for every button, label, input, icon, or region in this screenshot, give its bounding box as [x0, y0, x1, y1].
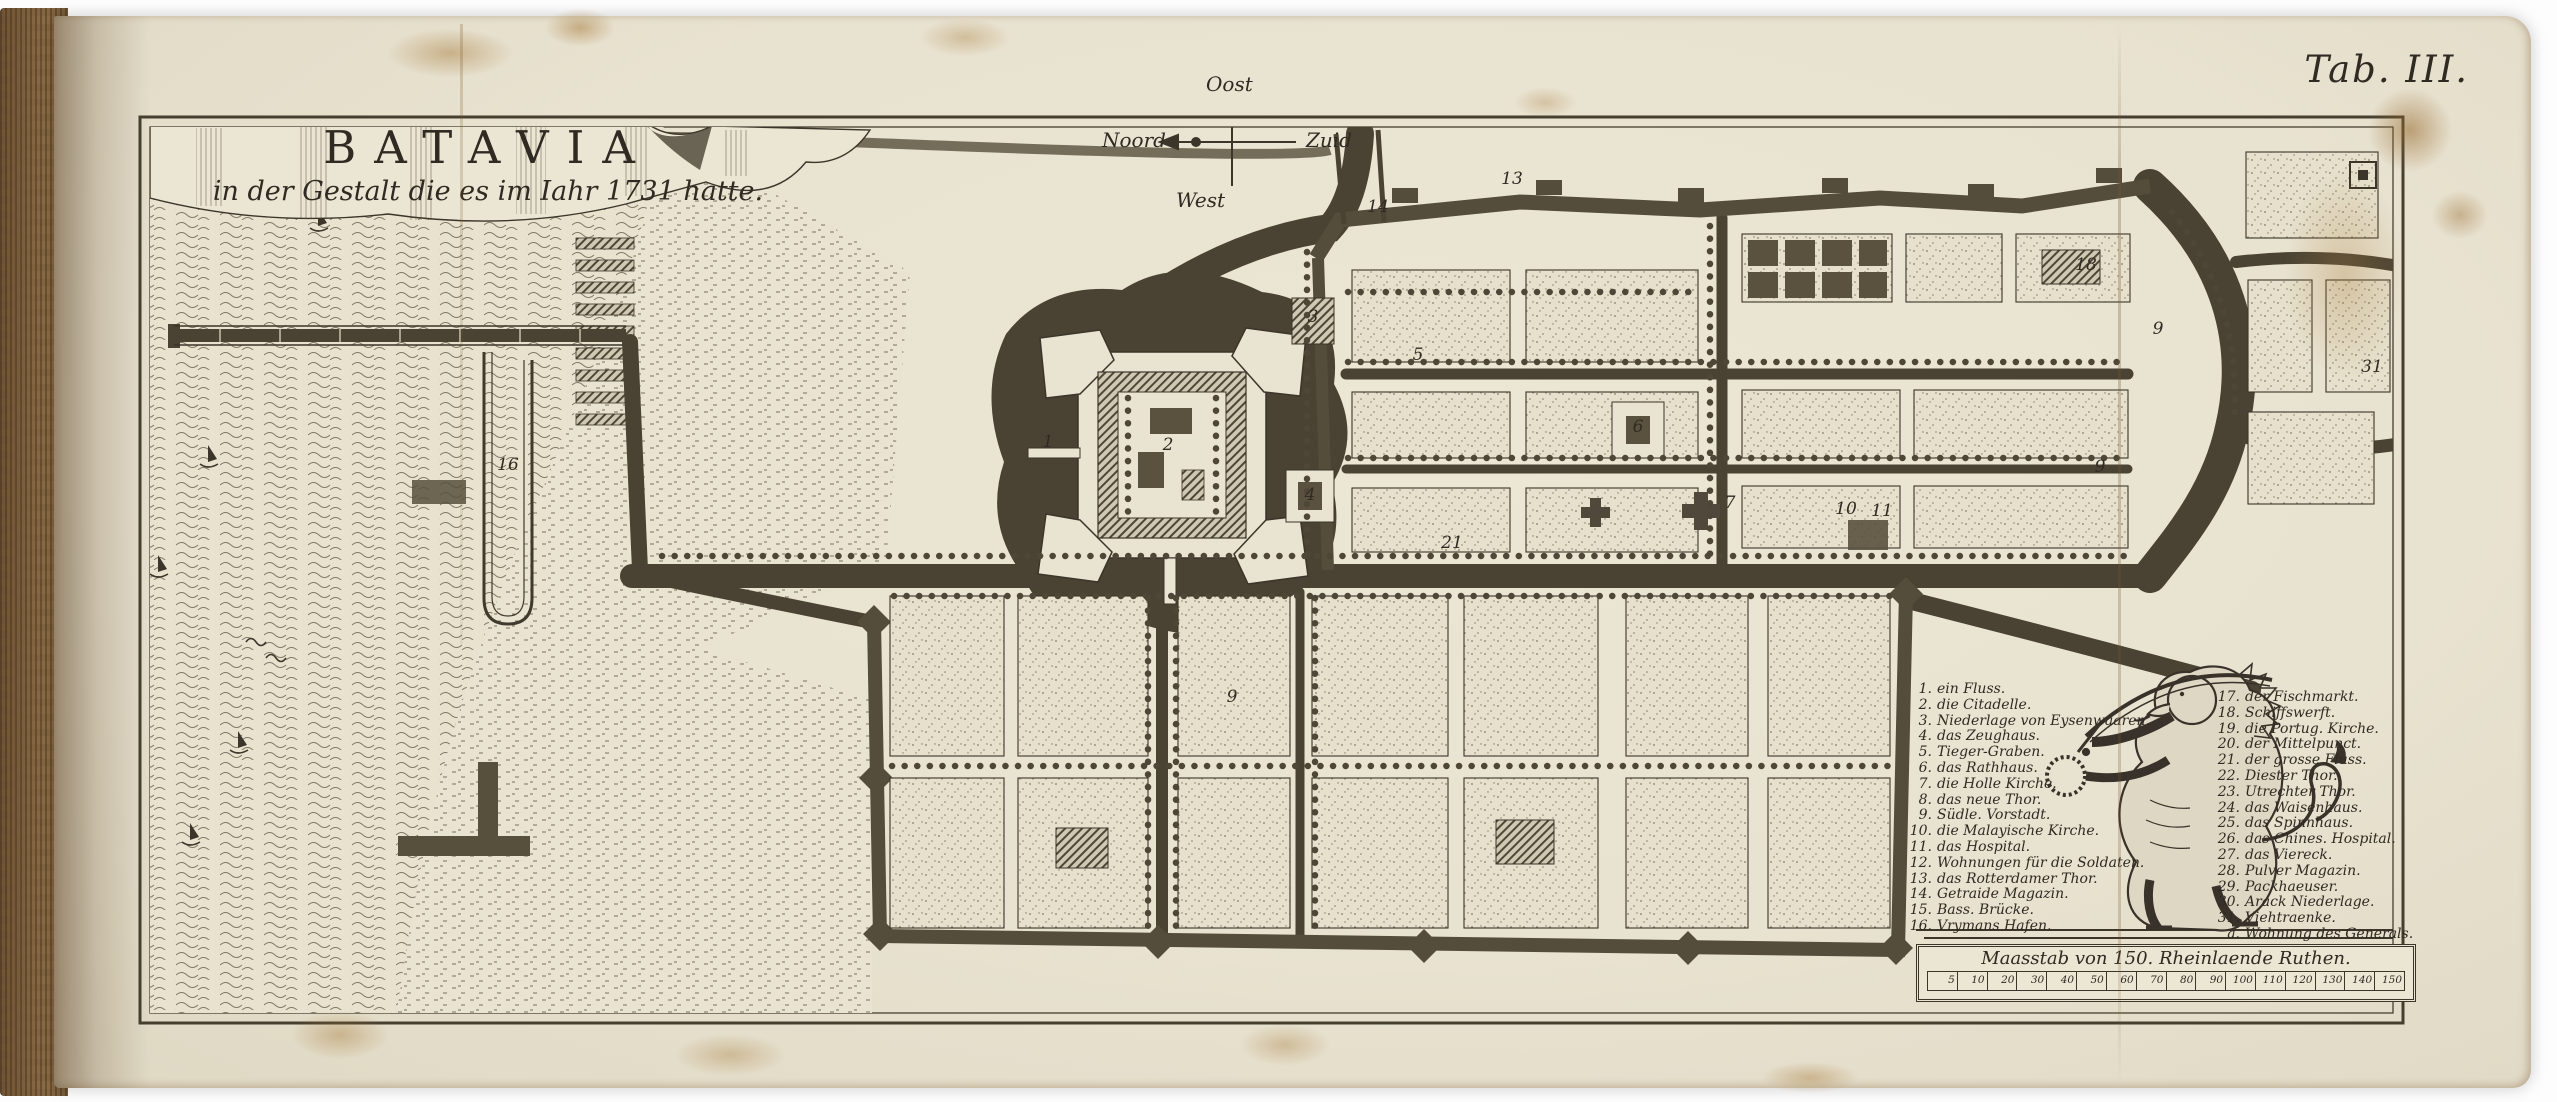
title-subtitle: in der Gestalt die es im Iahr 1731 hatte… — [208, 176, 768, 207]
scale-tick: 90 — [2196, 972, 2226, 990]
scale-tick: 100 — [2226, 972, 2256, 990]
compass-west-label: West — [1176, 188, 1225, 212]
map-marker: 2 — [1162, 435, 1174, 455]
legend-item: 12.Wohnungen für die Soldaten. — [1906, 856, 2141, 872]
map-marker: 18 — [2075, 255, 2097, 275]
legend-item: 15.Bass. Brücke. — [1906, 903, 2141, 919]
legend-item: 8.das neue Thor. — [1906, 793, 2141, 809]
legend-column-left: 1.ein Fluss.2.die Citadelle.3.Niederlage… — [1906, 682, 2141, 935]
legend-column-right: 17.der Fischmarkt.18.Schiffswerft.19.die… — [2214, 690, 2429, 943]
legend-item: 6.das Rathhaus. — [1906, 761, 2141, 777]
legend-item: 24.das Waisenhaus. — [2214, 801, 2429, 817]
map-marker: 6 — [1633, 417, 1644, 437]
legend-item: 23.Utrechter Thor. — [2214, 785, 2429, 801]
legend-item: a.Wohnung des Generals. — [2214, 927, 2429, 943]
compass-east-label: Oost — [1206, 72, 1253, 96]
legend-item: 18.Schiffswerft. — [2214, 706, 2429, 722]
legend-item: 17.der Fischmarkt. — [2214, 690, 2429, 706]
legend-item: 7.die Holle Kirche. — [1906, 777, 2141, 793]
legend-item: 14.Getraide Magazin. — [1906, 887, 2141, 903]
legend-item: 5.Tieger-Graben. — [1906, 745, 2141, 761]
legend-item: 9.Südle. Vorstadt. — [1906, 808, 2141, 824]
scale-tick: 30 — [2017, 972, 2047, 990]
map-marker: 14 — [1367, 197, 1389, 217]
map-marker: 1 — [1043, 432, 1054, 452]
scale-tick: 150 — [2375, 972, 2404, 990]
legend-item: 21.der grosse Fluss. — [2214, 753, 2429, 769]
map-marker: 9 — [2153, 319, 2164, 339]
legend-item: 30.Arack Niederlage. — [2214, 895, 2429, 911]
scale-cartouche: Maasstab von 150. Rheinlaende Ruthen. 51… — [1916, 944, 2416, 1002]
legend-item: 27.das Viereck. — [2214, 848, 2429, 864]
map-marker: 13 — [1501, 169, 1523, 189]
map-marker: 31 — [2361, 357, 2383, 377]
legend-item: 3.Niederlage von Eysenwaaren. — [1906, 714, 2141, 730]
scale-tick: 50 — [2077, 972, 2107, 990]
legend-item: 2.die Citadelle. — [1906, 698, 2141, 714]
scale-tick: 5 — [1928, 972, 1958, 990]
scale-bar: 5102030405060708090100110120130140150 — [1927, 971, 2405, 991]
title-main: BATAVIA — [323, 121, 653, 174]
book-photo: 12345679991011131416182131 Tab. III. BAT… — [0, 0, 2557, 1102]
legend-item: 16.Vrymans Hafen. — [1906, 919, 2141, 935]
map-marker: 4 — [1304, 485, 1316, 505]
scale-tick: 110 — [2256, 972, 2286, 990]
map-marker: 11 — [1871, 501, 1893, 521]
scale-tick: 40 — [2047, 972, 2077, 990]
scale-tick: 20 — [1988, 972, 2018, 990]
legend-item: 11.das Hospital. — [1906, 840, 2141, 856]
legend-item: 26.das Chines. Hospital. — [2214, 832, 2429, 848]
map-marker: 9 — [2095, 457, 2106, 477]
map-marker: 21 — [1440, 533, 1463, 553]
legend-item: 29.Packhaeuser. — [2214, 880, 2429, 896]
legend-item: 20.der Mittelpunct. — [2214, 737, 2429, 753]
compass-rose — [1160, 100, 1296, 186]
map-marker: 10 — [1835, 499, 1857, 519]
scale-tick: 80 — [2167, 972, 2197, 990]
map-marker: 16 — [497, 455, 519, 475]
map-marker: 3 — [1308, 307, 1319, 327]
map-title: BATAVIA in der Gestalt die es im Iahr 17… — [208, 122, 768, 207]
legend-item: 13.das Rotterdamer Thor. — [1906, 872, 2141, 888]
compass-south-label: Zuid — [1306, 128, 1352, 152]
legend-item: 31.Viehtraenke. — [2214, 911, 2429, 927]
legend-item: 4.das Zeughaus. — [1906, 729, 2141, 745]
plate-number: Tab. III. — [2304, 48, 2469, 91]
map-marker: 5 — [1413, 345, 1424, 365]
legend-item: 10.die Malayische Kirche. — [1906, 824, 2141, 840]
scale-tick: 10 — [1958, 972, 1988, 990]
scale-tick: 70 — [2137, 972, 2167, 990]
legend-item: 1.ein Fluss. — [1906, 682, 2141, 698]
scale-tick: 60 — [2107, 972, 2137, 990]
scale-tick: 140 — [2345, 972, 2375, 990]
scale-label: Maasstab von 150. Rheinlaende Ruthen. — [1917, 948, 2415, 969]
legend-item: 19.die Portug. Kirche. — [2214, 722, 2429, 738]
legend-item: 28.Pulver Magazin. — [2214, 864, 2429, 880]
scale-tick: 120 — [2286, 972, 2316, 990]
map-marker: 9 — [1227, 687, 1238, 707]
compass-north-label: Noord — [1102, 128, 1166, 152]
legend-item: 25.das Spinnhaus. — [2214, 816, 2429, 832]
map-marker: 7 — [1725, 493, 1736, 513]
scale-tick: 130 — [2316, 972, 2346, 990]
legend-item: 22.Diester Thor. — [2214, 769, 2429, 785]
